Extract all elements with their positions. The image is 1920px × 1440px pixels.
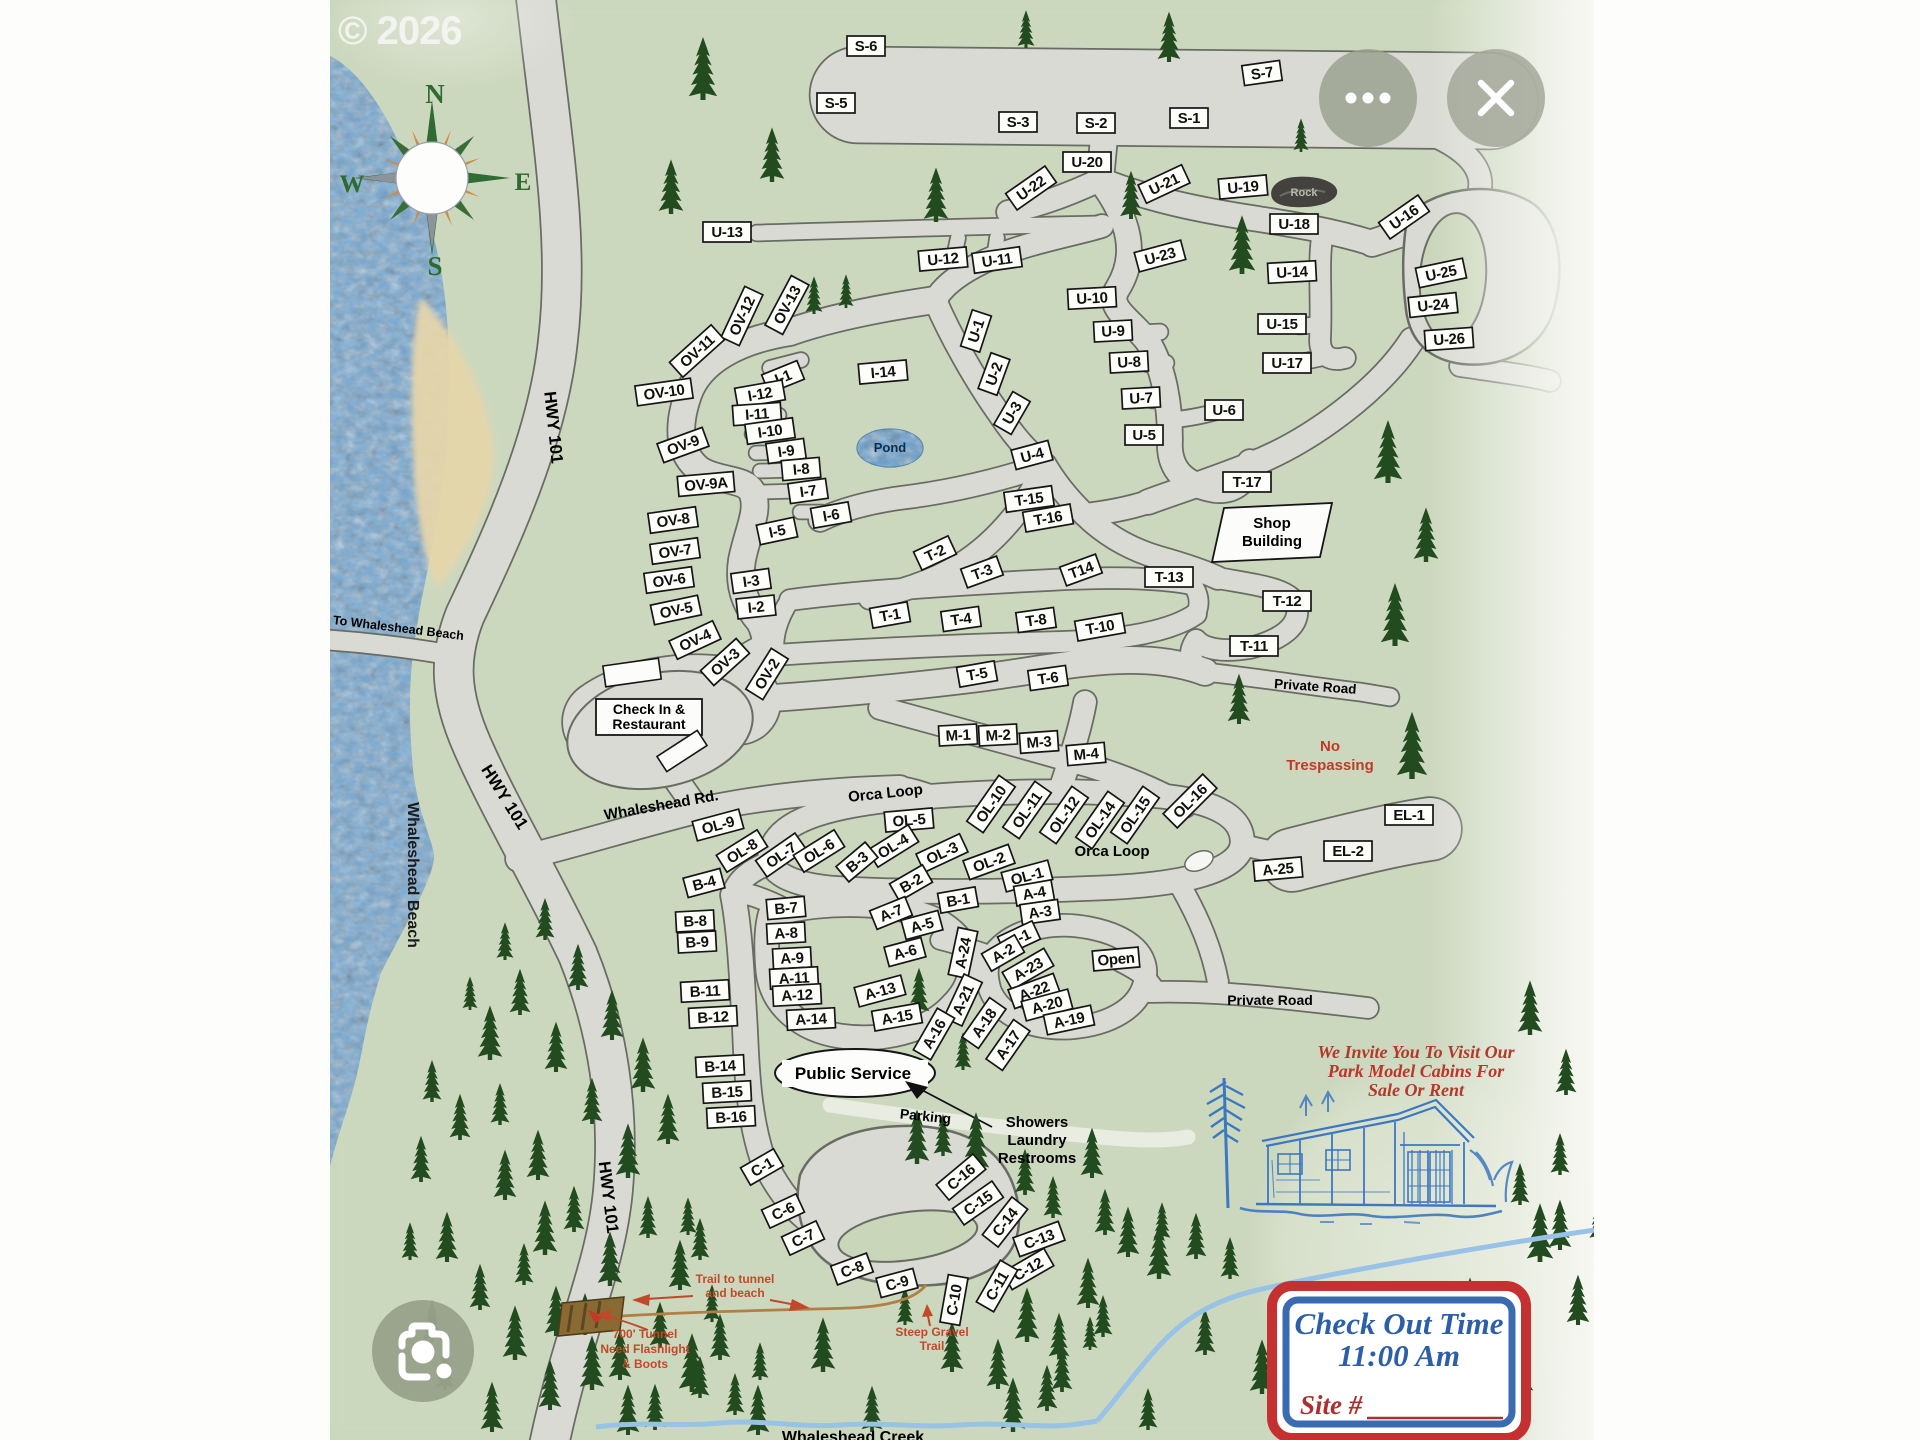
svg-text:T-13: T-13: [1155, 569, 1184, 586]
svg-text:& Boots: & Boots: [622, 1357, 668, 1371]
svg-text:M-1: M-1: [945, 727, 971, 745]
svg-text:I-7: I-7: [799, 482, 818, 501]
svg-text:U-26: U-26: [1433, 330, 1465, 349]
svg-text:T-12: T-12: [1273, 593, 1302, 610]
svg-text:Restaurant: Restaurant: [612, 716, 685, 732]
svg-text:I-3: I-3: [742, 572, 761, 591]
svg-text:B-7: B-7: [774, 899, 799, 918]
svg-text:M-4: M-4: [1073, 745, 1100, 764]
svg-text:and beach: and beach: [705, 1286, 764, 1300]
svg-text:S-1: S-1: [1178, 110, 1200, 127]
svg-text:T-5: T-5: [965, 665, 988, 685]
svg-text:Rock: Rock: [1291, 187, 1319, 199]
svg-text:11:00 Am: 11:00 Am: [1338, 1338, 1460, 1373]
svg-text:Whaleshead Beach: Whaleshead Beach: [404, 802, 421, 948]
svg-text:U-15: U-15: [1266, 316, 1297, 333]
svg-text:Steep Gravel: Steep Gravel: [895, 1325, 968, 1339]
svg-text:Park Model Cabins For: Park Model Cabins For: [1327, 1061, 1506, 1081]
svg-text:EL-1: EL-1: [1393, 807, 1424, 824]
svg-text:Building: Building: [1242, 533, 1302, 550]
svg-text:Pond: Pond: [874, 440, 907, 455]
svg-text:U-10: U-10: [1076, 289, 1108, 308]
svg-text:U-24: U-24: [1417, 296, 1451, 316]
svg-text:A-12: A-12: [781, 986, 813, 1005]
svg-text:B-11: B-11: [689, 982, 720, 1001]
svg-text:U-17: U-17: [1271, 355, 1302, 372]
svg-text:U-18: U-18: [1278, 216, 1309, 233]
svg-text:B-12: B-12: [697, 1008, 729, 1027]
svg-text:Trespassing: Trespassing: [1286, 757, 1374, 774]
svg-text:B-16: B-16: [715, 1108, 747, 1127]
svg-text:I-9: I-9: [777, 442, 796, 461]
svg-text:U-5: U-5: [1132, 427, 1155, 444]
svg-text:© 2026: © 2026: [338, 9, 462, 53]
svg-text:Whaleshead Creek: Whaleshead Creek: [782, 1429, 924, 1440]
svg-text:EL-2: EL-2: [1332, 843, 1363, 860]
svg-text:B-14: B-14: [704, 1057, 737, 1076]
svg-text:M-2: M-2: [985, 727, 1011, 745]
svg-text:I-2: I-2: [747, 598, 765, 617]
svg-text:Public Service: Public Service: [795, 1064, 911, 1083]
svg-text:U-20: U-20: [1071, 154, 1102, 171]
svg-text:S-6: S-6: [855, 38, 877, 55]
svg-text:Private Road: Private Road: [1227, 992, 1313, 1008]
svg-text:I-6: I-6: [821, 506, 840, 526]
svg-text:A-9: A-9: [780, 950, 804, 968]
svg-text:Need Flashlight: Need Flashlight: [600, 1342, 689, 1356]
svg-text:Shop: Shop: [1253, 515, 1291, 532]
svg-text:U-12: U-12: [927, 250, 960, 270]
svg-text:Showers: Showers: [1006, 1114, 1069, 1131]
svg-text:Restrooms: Restrooms: [998, 1150, 1076, 1167]
svg-text:I-8: I-8: [792, 461, 810, 479]
svg-text:U-7: U-7: [1129, 390, 1153, 408]
svg-text:Orca Loop: Orca Loop: [1074, 843, 1149, 860]
svg-text:T-6: T-6: [1037, 669, 1060, 689]
svg-text:A-3: A-3: [1027, 903, 1052, 923]
svg-text:E: E: [515, 169, 532, 196]
svg-text:U-9: U-9: [1101, 323, 1125, 341]
svg-text:I-5: I-5: [767, 522, 787, 542]
svg-text:A-25: A-25: [1262, 860, 1295, 880]
svg-text:S-5: S-5: [825, 95, 847, 112]
svg-text:U-13: U-13: [711, 224, 742, 241]
svg-text:S-7: S-7: [1250, 64, 1275, 84]
svg-text:U-14: U-14: [1276, 263, 1309, 282]
svg-text:Check Out Time: Check Out Time: [1295, 1306, 1504, 1341]
svg-text:T-8: T-8: [1025, 611, 1048, 631]
svg-text:No: No: [1320, 738, 1340, 755]
svg-text:S: S: [427, 251, 442, 281]
svg-text:T-11: T-11: [1240, 638, 1268, 655]
svg-text:U-8: U-8: [1117, 354, 1141, 372]
svg-text:We Invite You To Visit Our: We Invite You To Visit Our: [1317, 1042, 1515, 1062]
svg-text:W: W: [340, 171, 365, 198]
svg-text:I-14: I-14: [870, 363, 897, 382]
svg-text:S-3: S-3: [1007, 114, 1029, 131]
svg-text:N: N: [425, 79, 445, 109]
svg-text:T-4: T-4: [950, 610, 974, 630]
svg-text:T-17: T-17: [1233, 474, 1262, 491]
svg-text:I-10: I-10: [757, 422, 784, 442]
svg-text:B-9: B-9: [685, 934, 709, 952]
svg-text:Trail to tunnel: Trail to tunnel: [696, 1272, 775, 1286]
svg-text:U-6: U-6: [1212, 402, 1235, 419]
svg-text:Trail: Trail: [920, 1339, 945, 1353]
svg-text:Laundry: Laundry: [1007, 1132, 1067, 1149]
svg-text:S-2: S-2: [1085, 115, 1107, 132]
svg-text:T-1: T-1: [878, 606, 901, 626]
svg-text:A-8: A-8: [774, 925, 798, 943]
svg-text:Sale Or Rent: Sale Or Rent: [1368, 1080, 1465, 1100]
svg-text:Check In &: Check In &: [613, 701, 685, 717]
svg-text:B-8: B-8: [683, 913, 707, 931]
svg-text:U-19: U-19: [1227, 178, 1260, 198]
svg-text:B-15: B-15: [711, 1083, 743, 1102]
svg-text:Site #: Site #: [1300, 1390, 1363, 1420]
svg-text:A-14: A-14: [795, 1010, 828, 1029]
svg-text:M-3: M-3: [1026, 733, 1052, 752]
svg-text:Open: Open: [1097, 950, 1136, 970]
